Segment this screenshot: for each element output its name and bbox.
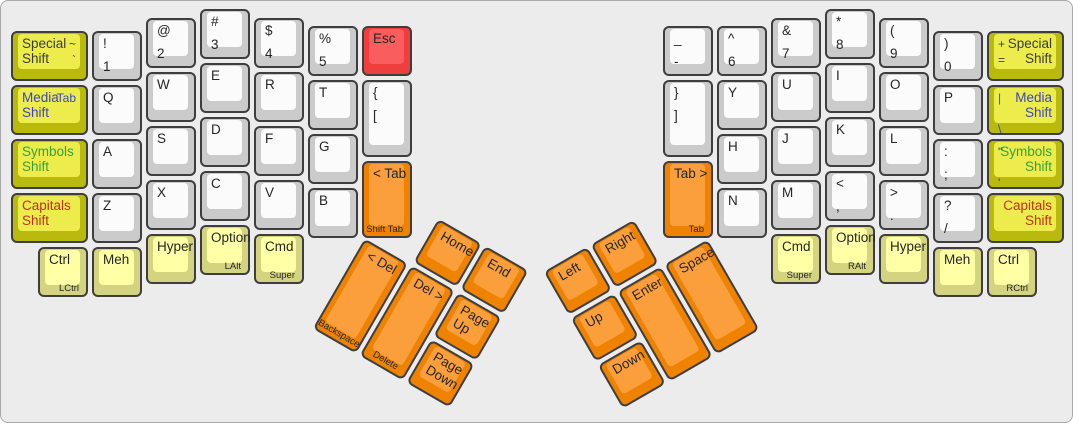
key-label: <, bbox=[836, 176, 863, 214]
key-label: !1 bbox=[103, 36, 130, 74]
key-label: N bbox=[728, 193, 755, 208]
keycap-top: Right bbox=[598, 226, 646, 274]
key-label: M bbox=[782, 185, 809, 200]
key-e[interactable]: E bbox=[200, 63, 250, 113]
key-k[interactable]: K bbox=[825, 117, 875, 167]
keycap-top: Meh bbox=[940, 250, 975, 285]
key-esc[interactable]: Esc bbox=[362, 26, 412, 76]
key-h[interactable]: H bbox=[717, 134, 767, 184]
key-minus[interactable]: _- bbox=[663, 26, 713, 76]
key-8[interactable]: *8 bbox=[825, 9, 875, 59]
key-r[interactable]: R bbox=[254, 72, 304, 122]
key-media-shift-right[interactable]: MediaShift|\ bbox=[987, 85, 1064, 135]
key-bracket-close[interactable]: }] bbox=[663, 80, 713, 157]
keycap-top: }] bbox=[670, 83, 705, 145]
keycap-top: Left bbox=[551, 253, 599, 301]
key-hyper-left[interactable]: Hyper bbox=[146, 234, 196, 284]
keycap-top: *8 bbox=[832, 12, 867, 47]
keycap-top: Down bbox=[605, 347, 653, 395]
key-4[interactable]: $4 bbox=[254, 18, 304, 68]
key-sublabel: Tab bbox=[57, 91, 76, 107]
key-period[interactable]: >. bbox=[879, 180, 929, 230]
key-label: G bbox=[319, 139, 346, 154]
keycap-top: V bbox=[261, 183, 296, 218]
key-label: #3 bbox=[211, 14, 238, 52]
key-z[interactable]: Z bbox=[92, 193, 142, 243]
key-label: Ctrl bbox=[998, 252, 1025, 267]
key-w[interactable]: W bbox=[146, 72, 196, 122]
key-meh-right[interactable]: Meh bbox=[933, 247, 983, 297]
key-label: *8 bbox=[836, 14, 863, 52]
key-label: Q bbox=[103, 90, 130, 105]
keycap-top: )0 bbox=[940, 34, 975, 69]
keycap-top: S bbox=[153, 129, 188, 164]
key-u[interactable]: U bbox=[771, 72, 821, 122]
key-capitals-shift-left[interactable]: CapitalsShift bbox=[11, 193, 88, 243]
key-label: U bbox=[782, 77, 809, 92]
key-label: H bbox=[728, 139, 755, 154]
key-2[interactable]: @2 bbox=[146, 18, 196, 68]
keycap-top: PageDown bbox=[418, 345, 466, 393]
keycap-top: Cmd bbox=[261, 237, 296, 272]
key-label: Up bbox=[583, 304, 614, 331]
key-label: Meh bbox=[944, 252, 971, 267]
key-label: Home bbox=[438, 229, 469, 256]
key-label: J bbox=[782, 131, 809, 146]
key-m[interactable]: M bbox=[771, 180, 821, 230]
key-meh-left[interactable]: Meh bbox=[92, 247, 142, 297]
keycap-top: CapitalsShift bbox=[18, 196, 80, 231]
key-label: PageDown bbox=[423, 349, 461, 389]
key-label: End bbox=[485, 256, 516, 283]
key-label: }] bbox=[674, 85, 701, 123]
key-q[interactable]: Q bbox=[92, 85, 142, 135]
keycap-top: (9 bbox=[886, 21, 921, 56]
key-symbols-shift-right[interactable]: SymbolsShift"' bbox=[987, 139, 1064, 189]
key-label: SymbolsShift bbox=[998, 144, 1052, 174]
key-comma[interactable]: <, bbox=[825, 171, 875, 221]
key-symbols-shift-left[interactable]: SymbolsShift bbox=[11, 139, 88, 189]
keycap-top: Q bbox=[99, 88, 134, 123]
key-front-label: RAlt bbox=[848, 261, 866, 272]
key-6[interactable]: ^6 bbox=[717, 26, 767, 76]
key-b[interactable]: B bbox=[308, 188, 358, 238]
key-label: Tab > bbox=[674, 166, 701, 181]
keycap-top: Option bbox=[832, 228, 867, 263]
key-label: V bbox=[265, 185, 292, 200]
keycap-top: X bbox=[153, 183, 188, 218]
keycap-top: Meh bbox=[99, 250, 134, 285]
key-label: C bbox=[211, 176, 238, 191]
keycap-top: SymbolsShift bbox=[18, 142, 80, 177]
key-label: CapitalsShift bbox=[998, 198, 1052, 228]
keycap-top: Esc bbox=[369, 29, 404, 64]
key-label: O bbox=[890, 77, 917, 92]
keycap-top: R bbox=[261, 75, 296, 110]
key-a[interactable]: A bbox=[92, 139, 142, 189]
keycap-top: Home bbox=[426, 225, 474, 273]
keycap-top: Z bbox=[99, 196, 134, 231]
key-capitals-shift-right[interactable]: CapitalsShift bbox=[987, 193, 1064, 243]
keycap-top: I bbox=[832, 66, 867, 101]
keycap-top: :; bbox=[940, 142, 975, 177]
key-option-left[interactable]: OptionLAlt bbox=[200, 225, 250, 275]
key-sublabel: "' bbox=[998, 145, 1002, 191]
keycap-top: $4 bbox=[261, 21, 296, 56]
key-label: Cmd bbox=[782, 239, 809, 254]
keycap-top: K bbox=[832, 120, 867, 155]
key-label: W bbox=[157, 77, 184, 92]
key-label: )0 bbox=[944, 36, 971, 74]
key-label: ?/ bbox=[944, 198, 971, 236]
key-p[interactable]: P bbox=[933, 85, 983, 135]
key-label: < Tab bbox=[373, 166, 400, 181]
keycap-top: E bbox=[207, 66, 242, 101]
keycap-top: C bbox=[207, 174, 242, 209]
keycap-top: !1 bbox=[99, 34, 134, 69]
keycap-top: B bbox=[315, 191, 350, 226]
keycap-top: SymbolsShift"' bbox=[994, 142, 1056, 177]
key-label: F bbox=[265, 131, 292, 146]
key-label: T bbox=[319, 85, 346, 100]
keycap-top: Ctrl bbox=[45, 250, 80, 285]
key-label: @2 bbox=[157, 23, 184, 61]
key-front-label: RCtrl bbox=[1006, 283, 1028, 294]
key-ctrl-right[interactable]: CtrlRCtrl bbox=[987, 247, 1037, 297]
keycap-top: Hyper bbox=[886, 237, 921, 272]
keycap-top: Cmd bbox=[778, 237, 813, 272]
key-label: Option bbox=[211, 230, 238, 245]
keycap-top: SpecialShift~` bbox=[18, 34, 80, 69]
keycap-top: CapitalsShift bbox=[994, 196, 1056, 231]
key-label: >. bbox=[890, 185, 917, 223]
key-label: ^6 bbox=[728, 31, 755, 69]
key-ctrl-left[interactable]: CtrlLCtrl bbox=[38, 247, 88, 297]
key-sublabel: ~` bbox=[69, 37, 76, 68]
key-label: L bbox=[890, 131, 917, 146]
keycap-top: J bbox=[778, 129, 813, 164]
key-label: MediaShift bbox=[998, 90, 1052, 120]
key-bracket-open[interactable]: {[ bbox=[362, 80, 412, 157]
key-cmd-right[interactable]: CmdSuper bbox=[771, 234, 821, 284]
key-sublabel: |\ bbox=[998, 91, 1001, 137]
key-label: Down bbox=[610, 351, 641, 378]
key-label: B bbox=[319, 193, 346, 208]
key-j[interactable]: J bbox=[771, 126, 821, 176]
keycap-top: A bbox=[99, 142, 134, 177]
keycap-top: MediaShift|\ bbox=[994, 88, 1056, 123]
key-label: SpecialShift bbox=[998, 36, 1052, 66]
key-l[interactable]: L bbox=[879, 126, 929, 176]
key-label: SymbolsShift bbox=[22, 144, 76, 174]
keycap-top: Y bbox=[724, 83, 759, 118]
keycap-top: N bbox=[724, 191, 759, 226]
keycap-top: ^6 bbox=[724, 29, 759, 64]
key-label: X bbox=[157, 185, 184, 200]
key-x[interactable]: X bbox=[146, 180, 196, 230]
key-label: Enter bbox=[630, 277, 661, 304]
key-label: K bbox=[836, 122, 863, 137]
key-hyper-right[interactable]: Hyper bbox=[879, 234, 929, 284]
key-front-label: LAlt bbox=[225, 261, 241, 272]
key-f[interactable]: F bbox=[254, 126, 304, 176]
key-front-label: Super bbox=[270, 270, 295, 281]
keycap-top: End bbox=[472, 252, 520, 300]
keycap-top: _- bbox=[670, 29, 705, 64]
keycap-top: T bbox=[315, 83, 350, 118]
keycap-top: P bbox=[940, 88, 975, 123]
key-label: Y bbox=[728, 85, 755, 100]
key-label: &7 bbox=[782, 23, 809, 61]
keycap-top: MediaShiftTab bbox=[18, 88, 80, 123]
key-s[interactable]: S bbox=[146, 126, 196, 176]
key-special-shift-left[interactable]: SpecialShift~` bbox=[11, 31, 88, 81]
key-label: A bbox=[103, 144, 130, 159]
key-label: Meh bbox=[103, 252, 130, 267]
key-label: E bbox=[211, 68, 238, 83]
key-0[interactable]: )0 bbox=[933, 31, 983, 81]
key-label: SpecialShift bbox=[22, 36, 76, 66]
key-label: {[ bbox=[373, 85, 400, 123]
keycap-top: <, bbox=[832, 174, 867, 209]
key-label: $4 bbox=[265, 23, 292, 61]
key-front-label: LCtrl bbox=[59, 283, 79, 294]
key-semicolon[interactable]: :; bbox=[933, 139, 983, 189]
key-label: %5 bbox=[319, 31, 346, 69]
key-label: CapitalsShift bbox=[22, 198, 76, 228]
key-label: < Del bbox=[364, 248, 395, 275]
keycap-top: Up bbox=[578, 300, 626, 348]
key-media-shift-left[interactable]: MediaShiftTab bbox=[11, 85, 88, 135]
keyboard-layout: SpecialShift~`MediaShiftTabSymbolsShiftC… bbox=[0, 0, 1073, 423]
key-label: (9 bbox=[890, 23, 917, 61]
key-label: S bbox=[157, 131, 184, 146]
keycap-top: %5 bbox=[315, 29, 350, 64]
keycap-top: F bbox=[261, 129, 296, 164]
key-o[interactable]: O bbox=[879, 72, 929, 122]
keycap-top: Option bbox=[207, 228, 242, 263]
keycap-top: U bbox=[778, 75, 813, 110]
key-label: Hyper bbox=[157, 239, 184, 254]
keycap-top: &7 bbox=[778, 21, 813, 56]
key-1[interactable]: !1 bbox=[92, 31, 142, 81]
key-label: I bbox=[836, 68, 863, 83]
keycap-top: W bbox=[153, 75, 188, 110]
key-7[interactable]: &7 bbox=[771, 18, 821, 68]
key-label: Esc bbox=[373, 31, 400, 46]
key-d[interactable]: D bbox=[200, 117, 250, 167]
key-front-label: Super bbox=[787, 270, 812, 281]
keycap-top: @2 bbox=[153, 21, 188, 56]
key-label: _- bbox=[674, 31, 701, 69]
key-slash[interactable]: ?/ bbox=[933, 193, 983, 243]
keycap-top: {[ bbox=[369, 83, 404, 145]
key-cmd-left[interactable]: CmdSuper bbox=[254, 234, 304, 284]
keycap-top: Hyper bbox=[153, 237, 188, 272]
key-label: PageUp bbox=[450, 302, 488, 342]
keycap-top: O bbox=[886, 75, 921, 110]
keycap-top: M bbox=[778, 183, 813, 218]
key-label: Hyper bbox=[890, 239, 917, 254]
keycap-top: Ctrl bbox=[994, 250, 1029, 285]
key-5[interactable]: %5 bbox=[308, 26, 358, 76]
keycap-top: #3 bbox=[207, 12, 242, 47]
key-g[interactable]: G bbox=[308, 134, 358, 184]
key-sublabel: += bbox=[998, 37, 1005, 68]
key-v[interactable]: V bbox=[254, 180, 304, 230]
key-label: P bbox=[944, 90, 971, 105]
key-option-right[interactable]: OptionRAlt bbox=[825, 225, 875, 275]
key-label: Left bbox=[556, 257, 587, 284]
keycap-top: ?/ bbox=[940, 196, 975, 231]
key-n[interactable]: N bbox=[717, 188, 767, 238]
key-3[interactable]: #3 bbox=[200, 9, 250, 59]
key-label: Ctrl bbox=[49, 252, 76, 267]
key-label: Option bbox=[836, 230, 863, 245]
keycap-top: >. bbox=[886, 183, 921, 218]
key-label: Del > bbox=[411, 275, 442, 302]
key-label: :; bbox=[944, 144, 971, 182]
key-label: D bbox=[211, 122, 238, 137]
key-y[interactable]: Y bbox=[717, 80, 767, 130]
keycap-top: D bbox=[207, 120, 242, 155]
key-label: Z bbox=[103, 198, 130, 213]
key-i[interactable]: I bbox=[825, 63, 875, 113]
key-label: Space bbox=[676, 250, 707, 277]
key-t[interactable]: T bbox=[308, 80, 358, 130]
keycap-top: H bbox=[724, 137, 759, 172]
key-c[interactable]: C bbox=[200, 171, 250, 221]
keycap-top: PageUp bbox=[445, 299, 493, 347]
keycap-top: SpecialShift+= bbox=[994, 34, 1056, 69]
key-special-shift-right[interactable]: SpecialShift+= bbox=[987, 31, 1064, 81]
key-label: Cmd bbox=[265, 239, 292, 254]
keycap-top: L bbox=[886, 129, 921, 164]
key-9[interactable]: (9 bbox=[879, 18, 929, 68]
keycap-top: G bbox=[315, 137, 350, 172]
key-label: Right bbox=[603, 230, 634, 257]
key-label: R bbox=[265, 77, 292, 92]
